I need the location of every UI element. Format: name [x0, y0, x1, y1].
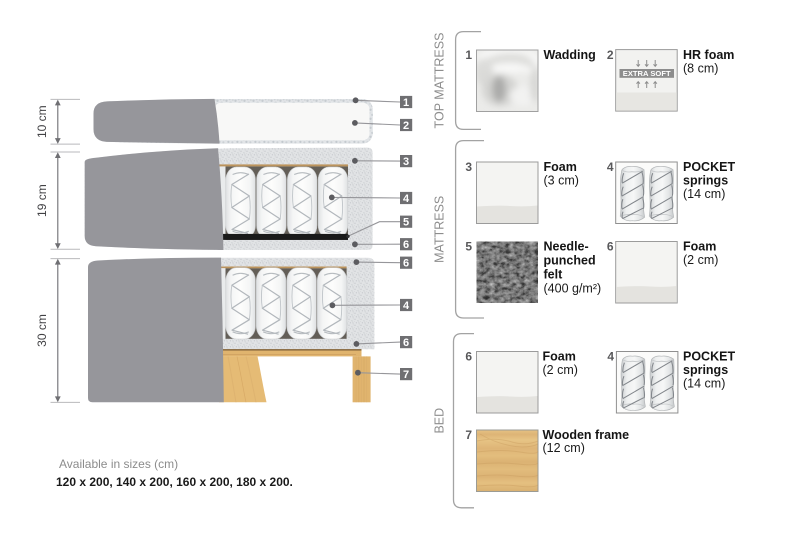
- svg-text:(14 cm): (14 cm): [683, 187, 725, 201]
- svg-text:(3 cm): (3 cm): [544, 173, 579, 187]
- svg-text:19 cm: 19 cm: [35, 184, 49, 217]
- svg-text:Foam: Foam: [683, 239, 716, 253]
- svg-text:Available in sizes (cm): Available in sizes (cm): [59, 457, 178, 471]
- svg-text:3: 3: [403, 156, 409, 168]
- svg-text:(12 cm): (12 cm): [543, 441, 585, 455]
- svg-text:(8 cm): (8 cm): [683, 61, 718, 75]
- svg-text:Foam: Foam: [543, 349, 576, 363]
- svg-text:4: 4: [403, 193, 410, 205]
- svg-text:HR foam: HR foam: [683, 48, 734, 62]
- svg-text:springs: springs: [683, 173, 728, 187]
- svg-text:6: 6: [403, 258, 409, 270]
- svg-text:6: 6: [403, 337, 409, 349]
- svg-text:4: 4: [607, 349, 614, 363]
- svg-text:Wadding: Wadding: [544, 48, 596, 62]
- svg-text:1: 1: [465, 48, 472, 62]
- svg-text:TOP MATTRESS: TOP MATTRESS: [433, 33, 447, 129]
- svg-text:7: 7: [465, 428, 472, 442]
- svg-text:7: 7: [403, 369, 409, 381]
- svg-text:6: 6: [403, 239, 409, 251]
- svg-text:(400 g/m²): (400 g/m²): [544, 282, 602, 296]
- svg-text:(14 cm): (14 cm): [683, 376, 725, 390]
- svg-text:(2 cm): (2 cm): [683, 253, 718, 267]
- svg-text:3: 3: [465, 160, 472, 174]
- svg-text:Needle-: Needle-: [544, 239, 589, 253]
- svg-text:4: 4: [403, 300, 410, 312]
- svg-text:5: 5: [465, 239, 472, 253]
- svg-text:(2 cm): (2 cm): [543, 363, 578, 377]
- svg-text:EXTRA SOFT: EXTRA SOFT: [623, 69, 671, 78]
- svg-text:POCKET: POCKET: [683, 349, 735, 363]
- svg-text:2: 2: [607, 48, 614, 62]
- svg-text:punched: punched: [544, 253, 596, 267]
- svg-text:2: 2: [403, 120, 409, 132]
- svg-text:5: 5: [403, 217, 409, 229]
- svg-text:felt: felt: [544, 268, 564, 282]
- svg-text:30 cm: 30 cm: [35, 314, 49, 347]
- svg-text:120 x 200, 140 x 200, 160 x 20: 120 x 200, 140 x 200, 160 x 200, 180 x 2…: [56, 475, 293, 489]
- svg-text:10 cm: 10 cm: [35, 105, 49, 138]
- svg-text:Wooden frame: Wooden frame: [543, 428, 630, 442]
- svg-text:6: 6: [465, 349, 472, 363]
- svg-text:6: 6: [607, 239, 614, 253]
- svg-text:POCKET: POCKET: [683, 160, 735, 174]
- svg-text:Foam: Foam: [544, 160, 577, 174]
- svg-text:springs: springs: [683, 363, 728, 377]
- svg-text:4: 4: [607, 160, 614, 174]
- svg-text:1: 1: [403, 97, 409, 109]
- svg-text:BED: BED: [433, 408, 447, 434]
- svg-text:MATTRESS: MATTRESS: [433, 196, 447, 263]
